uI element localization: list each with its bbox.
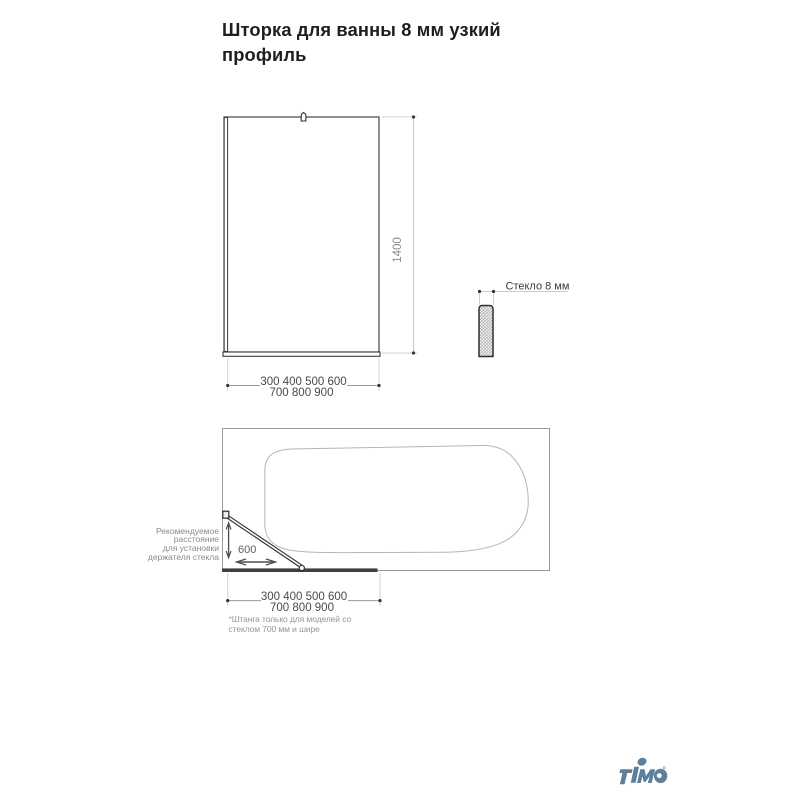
svg-text:1400: 1400 bbox=[392, 237, 404, 263]
svg-text:600: 600 bbox=[238, 544, 256, 556]
svg-text:Стекло 8 мм: Стекло 8 мм bbox=[506, 280, 570, 292]
svg-text:700 800 900: 700 800 900 bbox=[270, 602, 334, 614]
svg-text:700 800 900: 700 800 900 bbox=[270, 387, 334, 399]
